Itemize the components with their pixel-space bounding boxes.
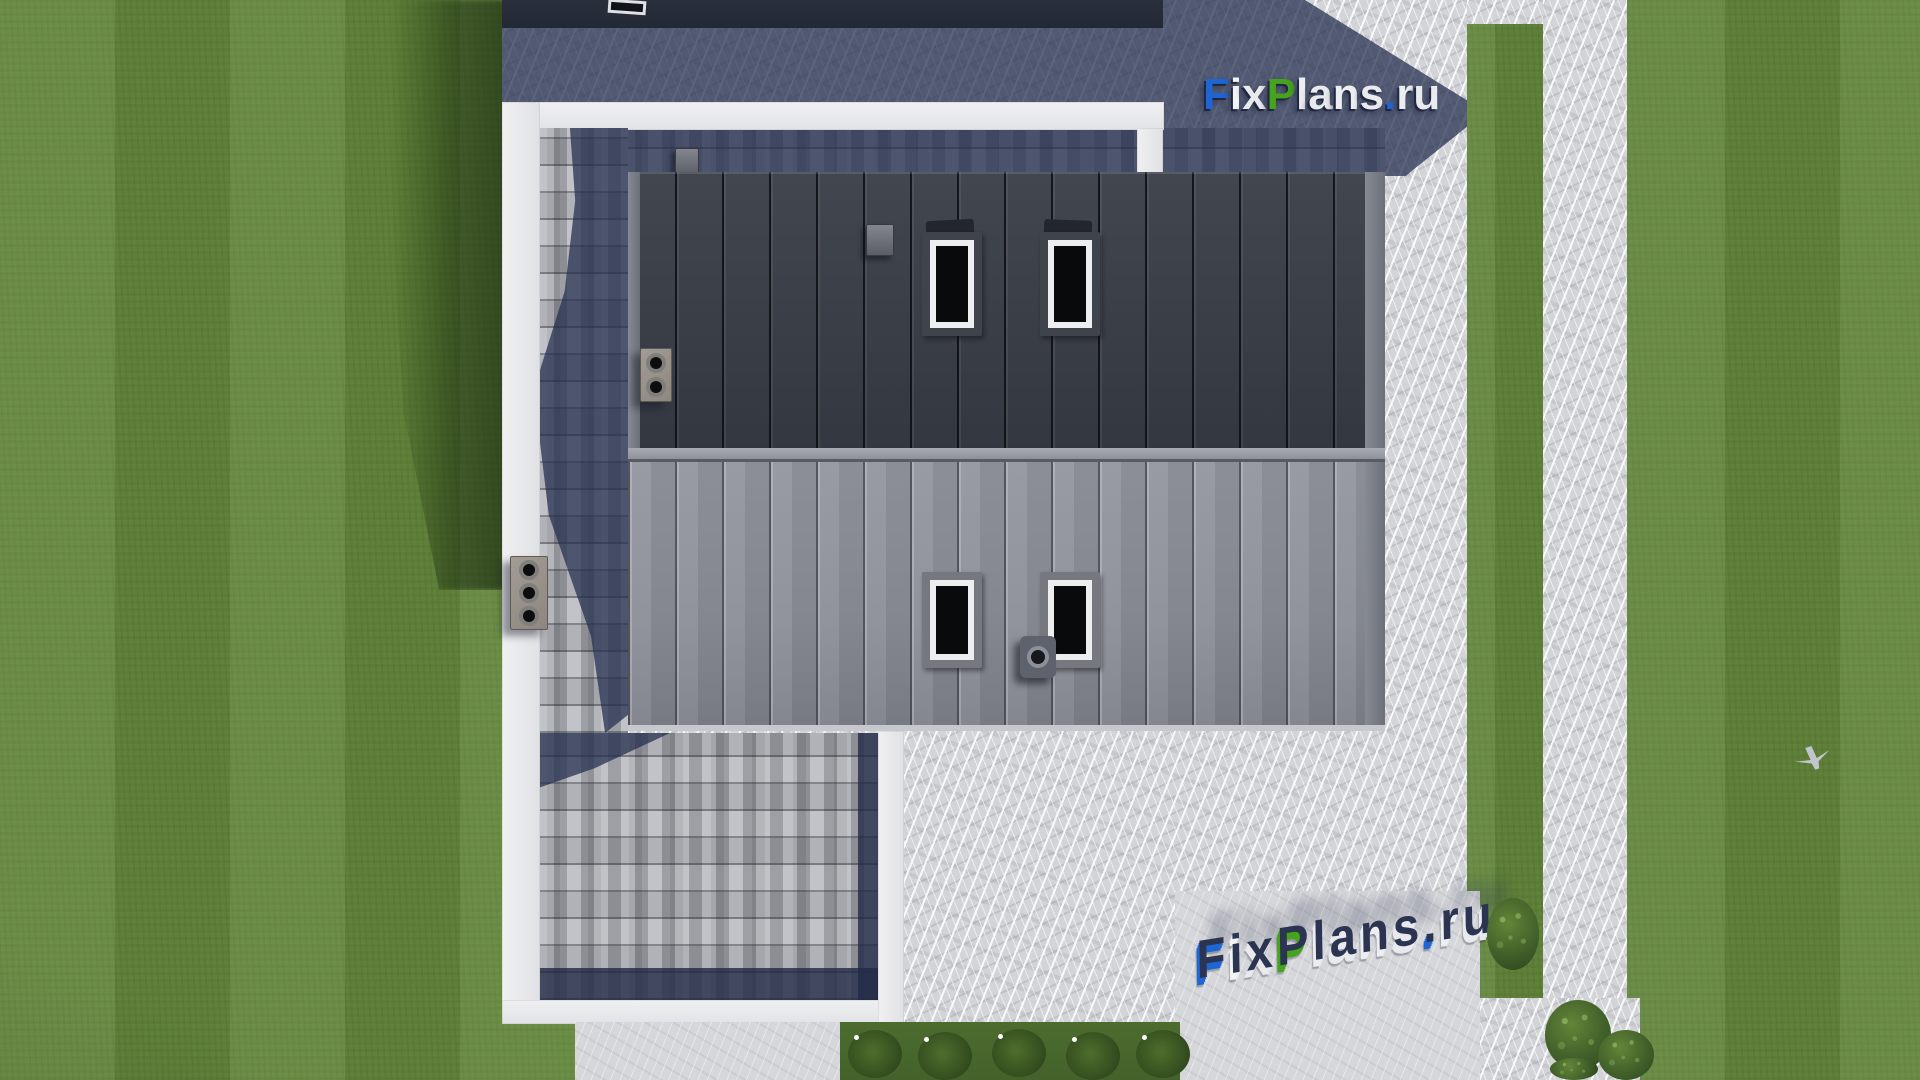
brand-letter: s <box>1360 70 1384 119</box>
brand-letter: n <box>1359 900 1393 965</box>
shingle-terrace <box>540 733 878 1000</box>
flower-bed <box>840 1022 1180 1080</box>
skylight-glass <box>930 580 974 660</box>
flowering-shrub <box>918 1032 972 1080</box>
shrub <box>1598 1030 1654 1080</box>
roof-edge-trim-right <box>1365 462 1385 725</box>
path-bottom <box>575 1022 840 1080</box>
roof-slope-lower <box>628 462 1385 731</box>
roof-skylight <box>922 232 982 336</box>
chimney-three-flues <box>510 556 548 630</box>
flowering-shrub <box>1066 1032 1120 1080</box>
aerial-render-scene: FixPlans.ru FixPlans.ru <box>0 0 1920 1080</box>
skylight-glass <box>1048 240 1092 328</box>
flat-roof-top <box>502 0 1163 28</box>
shrub <box>1487 898 1539 970</box>
brand-letter: x <box>1242 70 1266 119</box>
skylight-glass <box>930 240 974 328</box>
brand-letter: i <box>1229 923 1247 986</box>
terrace-shadow-right <box>858 733 878 1000</box>
roof-vent-pipe <box>1020 636 1056 678</box>
brand-letter: r <box>1396 70 1413 119</box>
terrace-shadow-bottom <box>540 968 878 1000</box>
brand-letter: l <box>1296 70 1308 119</box>
roof-edge-trim-left <box>628 172 640 452</box>
fascia-top <box>502 102 1164 130</box>
roof-skylight <box>922 572 982 668</box>
brand-letter: u <box>1413 70 1440 119</box>
chimney-flue <box>519 606 539 626</box>
brand-letter: P <box>1267 70 1296 119</box>
fascia-terrace-right <box>878 731 904 1024</box>
brand-letter: . <box>1384 70 1396 119</box>
roof-edge-trim-right <box>1365 172 1385 452</box>
brand-letter: s <box>1392 895 1423 960</box>
brand-letter: P <box>1276 913 1313 979</box>
brand-letter: F <box>1196 926 1230 991</box>
brand-letter: r <box>1440 889 1463 952</box>
chimney-flue <box>519 560 539 580</box>
roof-vent-icon <box>866 224 894 256</box>
shadow-on-shingle-band <box>540 128 1385 176</box>
shrub <box>1550 1058 1598 1080</box>
roof-ridge-cap <box>628 448 1385 462</box>
brand-letter: F <box>1203 70 1230 119</box>
roof-skylight-small <box>608 0 647 15</box>
flowering-shrub <box>1136 1030 1190 1078</box>
brand-letter: n <box>1333 70 1360 119</box>
brand-letter: l <box>1312 910 1330 973</box>
vent-pipe-opening <box>1027 646 1049 668</box>
flowering-shrub <box>848 1030 902 1078</box>
flowering-shrub <box>992 1029 1046 1077</box>
path-right <box>1543 0 1627 1012</box>
chimney-two-flues <box>640 348 672 402</box>
chimney-flue <box>646 377 666 397</box>
fascia-return <box>1137 128 1163 174</box>
chimney-flue <box>519 583 539 603</box>
brand-letter: i <box>1230 70 1242 119</box>
site-logo: FixPlans.ru <box>1203 70 1440 120</box>
brand-letter: a <box>1329 905 1360 970</box>
brand-letter: a <box>1308 70 1332 119</box>
roof-skylight <box>1040 232 1100 336</box>
fascia-terrace-bottom <box>502 1000 904 1024</box>
brand-letter: . <box>1423 893 1441 956</box>
roof-slope-upper <box>628 172 1385 452</box>
brand-letter: x <box>1246 918 1277 983</box>
chimney-flue <box>646 353 666 373</box>
